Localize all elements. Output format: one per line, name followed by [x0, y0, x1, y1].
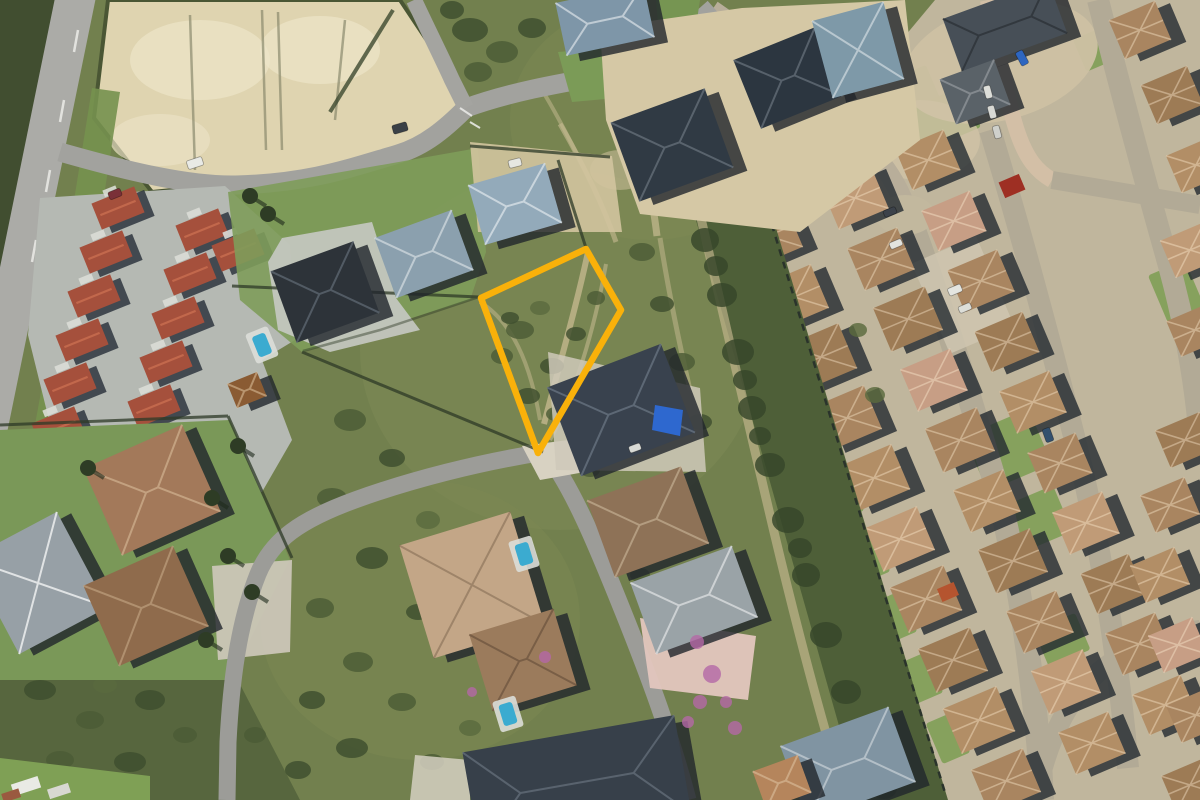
scrub-bush [755, 453, 785, 477]
scrub-bush [452, 18, 488, 42]
scrub-bush [704, 256, 728, 276]
scrub-bush [530, 301, 550, 315]
scrub-bush [464, 62, 492, 82]
flowering-shrub [690, 635, 704, 649]
scrub-bush [810, 622, 842, 648]
palm-tree [242, 188, 258, 204]
scrub-bush [306, 598, 334, 618]
scrub-bush [114, 752, 146, 772]
flowering-shrub [693, 695, 707, 709]
palm-tree [80, 460, 96, 476]
flowering-shrub [728, 721, 742, 735]
scrub-bush [792, 563, 820, 587]
scrub-bush [707, 283, 737, 307]
palm-tree [220, 548, 236, 564]
flowering-shrub [703, 665, 721, 683]
palm-tree [244, 584, 260, 600]
scrub-bush [831, 680, 861, 704]
scrub-bush [486, 41, 518, 63]
scrub-bush [629, 243, 655, 261]
scrub-bush [501, 312, 519, 324]
palm-tree [260, 206, 276, 222]
scrub-bush [849, 323, 867, 337]
scrub-bush [299, 691, 325, 709]
palm-tree [230, 438, 246, 454]
sand-light-patch [130, 20, 270, 100]
scrub-bush [285, 761, 311, 779]
flowering-shrub [467, 687, 477, 697]
aerial-photo [0, 0, 1200, 800]
scrub-bush [518, 18, 546, 38]
flowering-shrub [720, 696, 732, 708]
scrub-bush [738, 396, 766, 420]
scrub-bush [722, 339, 754, 365]
flowering-shrub [539, 651, 551, 663]
scrub-bush [650, 296, 674, 312]
scrub-bush [336, 738, 368, 758]
scrub-bush [334, 409, 366, 431]
scrub-bush [459, 720, 481, 736]
scrub-bush [24, 680, 56, 700]
scrub-bush [772, 507, 804, 533]
scrub-bush [244, 727, 266, 743]
scrub-bush [691, 228, 719, 252]
scrub-bush [379, 449, 405, 467]
palm-tree [204, 490, 220, 506]
aerial-photo-canvas [0, 0, 1200, 800]
scrub-bush [733, 370, 757, 390]
paving [410, 755, 470, 800]
flowering-shrub [682, 716, 694, 728]
scrub-bush [749, 427, 771, 445]
scrub-bush [788, 538, 812, 558]
scrub-bush [566, 327, 586, 341]
scrub-bush [343, 652, 373, 672]
palm-tree [198, 632, 214, 648]
scrub-bush [135, 690, 165, 710]
scrub-bush [173, 727, 197, 743]
scrub-bush [865, 387, 885, 403]
scrub-bush [388, 693, 416, 711]
scrub-bush [587, 291, 605, 305]
scrub-bush [440, 1, 464, 19]
scrub-bush [76, 711, 104, 729]
scrub-bush [416, 511, 440, 529]
scrub-bush [356, 547, 388, 569]
